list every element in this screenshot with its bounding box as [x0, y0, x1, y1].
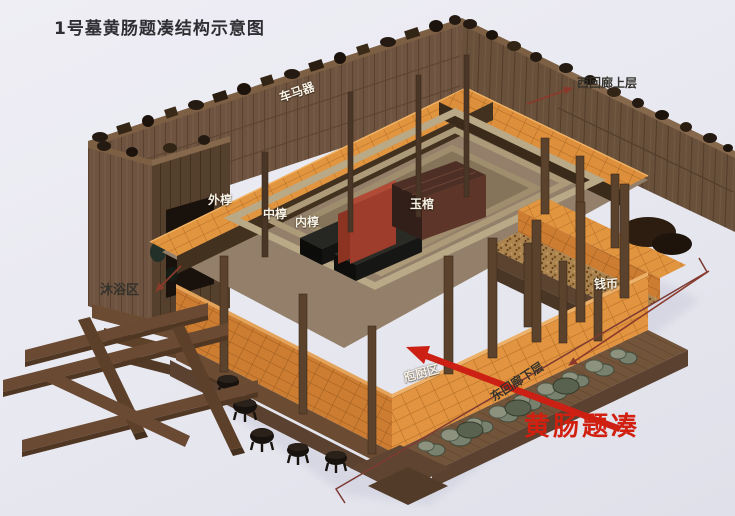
- label-huangchang-ticou: 黄肠题凑: [524, 414, 640, 440]
- label-west-corridor-upper: 西回廊上层: [577, 77, 637, 89]
- label-outer-coffin: 外椁: [208, 194, 232, 206]
- label-middle-coffin: 中椁: [263, 208, 287, 220]
- label-inner-coffin: 内椁: [295, 216, 319, 228]
- tomb-structure-diagram: 1号墓黄肠题凑结构示意图 车马器 西回廊上层 外椁 中椁 内椁 玉棺 沐浴区 钱…: [0, 0, 735, 516]
- label-coins: 钱币: [594, 278, 618, 290]
- label-bathing-area: 沐浴区: [100, 284, 139, 297]
- label-jade-coffin: 玉棺: [410, 198, 434, 210]
- diagram-title: 1号墓黄肠题凑结构示意图: [54, 21, 265, 38]
